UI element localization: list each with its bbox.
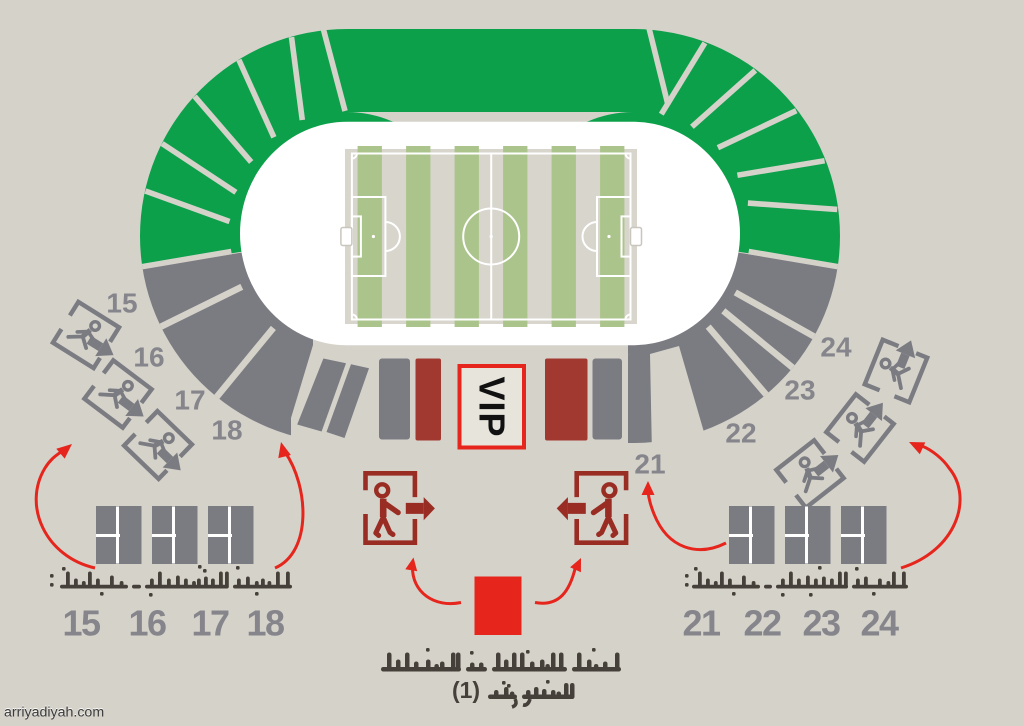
svg-text:24: 24 [860,603,899,644]
svg-text:17: 17 [174,385,205,416]
svg-text:15: 15 [62,603,101,644]
svg-text:23: 23 [802,603,840,644]
svg-text:16: 16 [133,342,164,373]
svg-text:21: 21 [634,449,665,480]
svg-text:16: 16 [128,603,166,644]
svg-text:(1): (1) [452,677,480,703]
svg-text:18: 18 [246,603,284,644]
svg-text:arriyadiyah.com: arriyadiyah.com [4,705,104,721]
svg-text:17: 17 [191,603,229,644]
svg-text:VIP: VIP [472,376,513,437]
svg-text:24: 24 [820,332,852,363]
svg-text:21: 21 [682,603,721,644]
svg-text:23: 23 [784,375,815,406]
svg-text:22: 22 [743,603,781,644]
svg-text:22: 22 [725,418,756,449]
svg-text:18: 18 [211,415,242,446]
svg-text:15: 15 [106,288,137,319]
